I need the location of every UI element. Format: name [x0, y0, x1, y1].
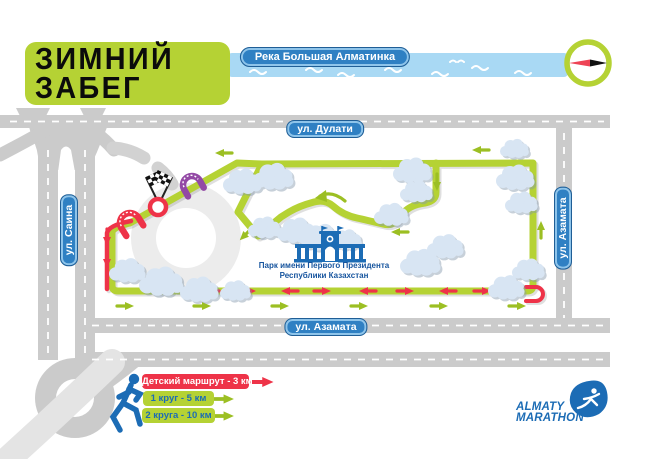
legend-arrow-green-2 — [214, 411, 234, 420]
event-title: ЗИМНИЙ ЗАБЕГ — [35, 44, 174, 102]
park-name: Парк имени Первого Президента Республики… — [234, 261, 414, 281]
almaty-marathon-wordmark: ALMATY MARATHON — [516, 402, 584, 424]
legend-item-kids-route: Детский маршрут - 3 км — [142, 374, 249, 389]
legend-arrow-green-1 — [214, 394, 234, 403]
legend-arrow-red — [252, 377, 273, 387]
winter-run-course-map: ЗИМНИЙ ЗАБЕГ Река Большая Алматинка ул. … — [0, 0, 650, 459]
legend-item-one-lap: 1 круг - 5 км — [143, 391, 214, 406]
road-label-azamat-bottom: ул. Азамата — [284, 318, 367, 336]
park-name-line1: Парк имени Первого Президента — [234, 261, 414, 271]
start-point-ring — [150, 199, 166, 215]
logo-line2: MARATHON — [516, 413, 584, 424]
road-label-dulati: ул. Дулати — [286, 120, 364, 138]
legend-item-two-laps: 2 круга - 10 км — [142, 408, 215, 423]
event-title-line1: ЗИМНИЙ — [35, 44, 174, 73]
event-title-box: ЗИМНИЙ ЗАБЕГ — [25, 42, 230, 105]
river-label: Река Большая Алматинка — [240, 47, 410, 67]
road-label-azamat-right: ул. Азамата — [554, 186, 572, 269]
park-name-line2: Республики Казахстан — [234, 271, 414, 281]
event-title-line2: ЗАБЕГ — [35, 73, 174, 102]
compass-icon — [567, 42, 609, 84]
road-label-saina: ул. Саина — [60, 194, 78, 266]
